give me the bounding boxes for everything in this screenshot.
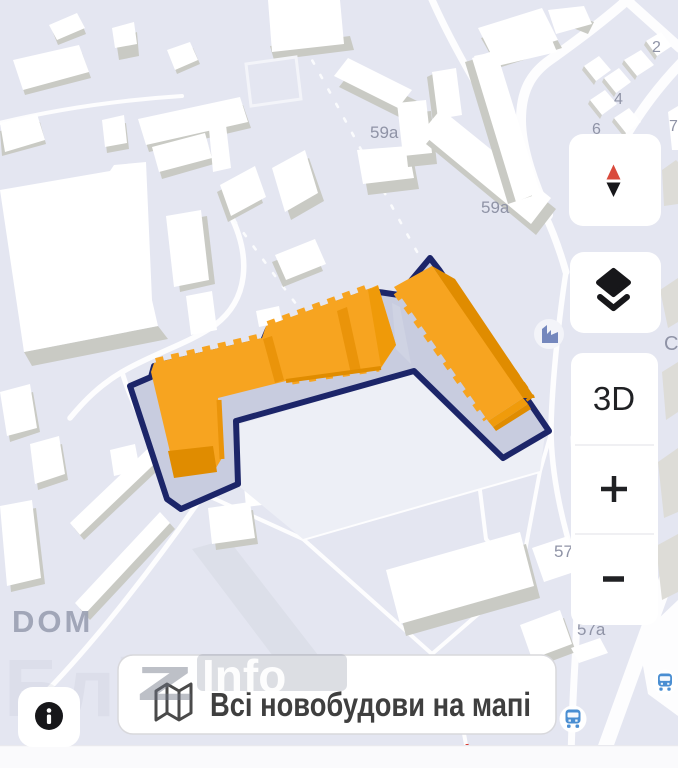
svg-text:57: 57	[554, 542, 573, 561]
svg-text:4: 4	[614, 91, 623, 108]
svg-text:3D: 3D	[593, 380, 635, 417]
svg-text:59a: 59a	[370, 123, 399, 142]
svg-text:59a: 59a	[481, 198, 510, 217]
svg-text:C: C	[664, 333, 678, 355]
svg-text:7: 7	[669, 118, 678, 135]
svg-text:2: 2	[652, 39, 661, 56]
svg-text:Info: Info	[202, 650, 286, 702]
svg-text:z: z	[135, 645, 195, 714]
svg-text:DOM: DOM	[12, 604, 93, 639]
